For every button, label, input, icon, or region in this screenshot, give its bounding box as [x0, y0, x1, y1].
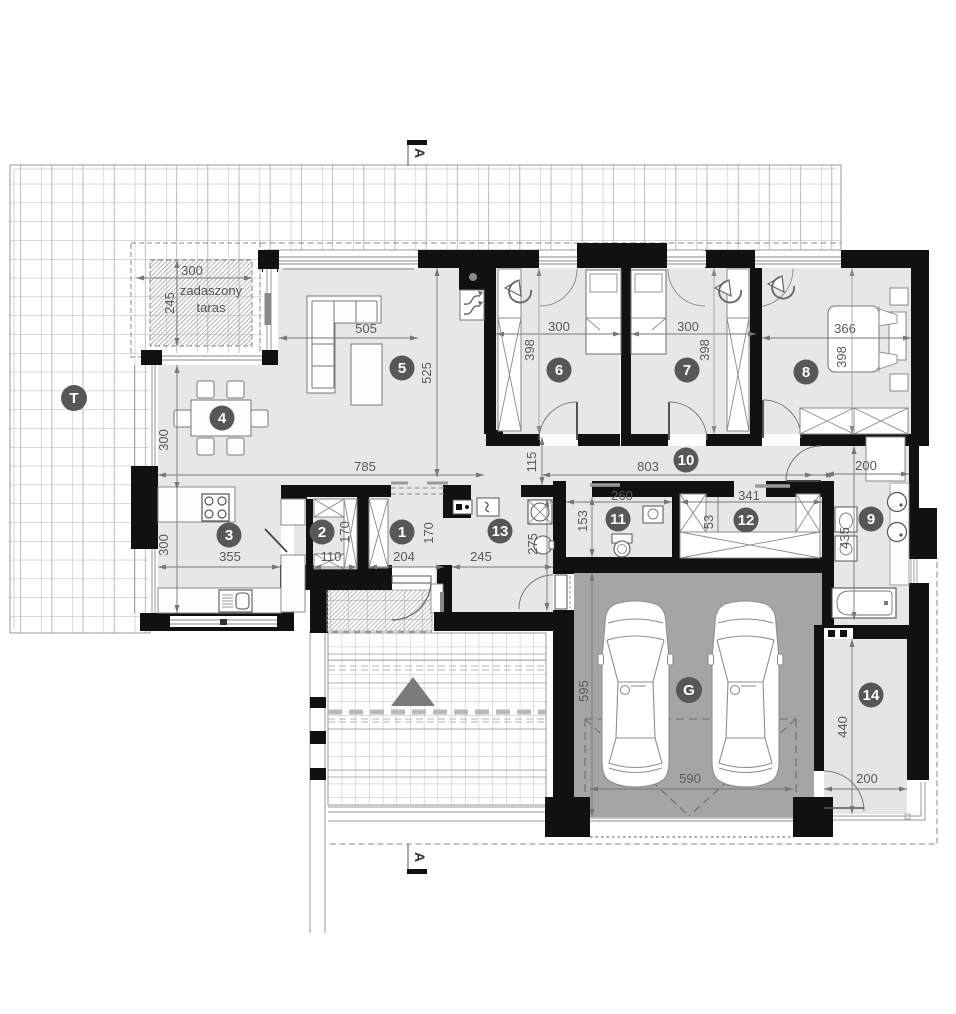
svg-text:A: A: [412, 852, 428, 862]
svg-text:110: 110: [321, 549, 342, 564]
svg-text:2: 2: [318, 524, 326, 541]
svg-text:200: 200: [855, 458, 877, 473]
svg-text:355: 355: [219, 549, 241, 564]
svg-text:785: 785: [354, 459, 376, 474]
svg-text:11: 11: [610, 511, 626, 528]
svg-text:1: 1: [398, 524, 406, 541]
svg-text:300: 300: [156, 429, 171, 451]
svg-text:170: 170: [337, 521, 352, 543]
svg-text:398: 398: [522, 339, 537, 361]
svg-text:9: 9: [867, 511, 875, 528]
svg-text:T: T: [69, 390, 78, 407]
svg-text:4: 4: [218, 410, 227, 427]
svg-text:8: 8: [802, 364, 810, 381]
svg-text:G: G: [683, 682, 695, 699]
svg-text:525: 525: [419, 362, 434, 384]
svg-text:590: 590: [679, 771, 701, 786]
svg-text:398: 398: [697, 339, 712, 361]
svg-text:14: 14: [863, 687, 880, 704]
svg-text:115: 115: [524, 452, 539, 473]
svg-text:204: 204: [393, 549, 415, 564]
svg-text:300: 300: [548, 319, 570, 334]
svg-text:260: 260: [611, 488, 633, 503]
svg-text:200: 200: [856, 771, 878, 786]
svg-text:275: 275: [525, 533, 540, 555]
svg-text:taras: taras: [197, 300, 226, 315]
svg-text:803: 803: [637, 459, 659, 474]
svg-text:7: 7: [683, 362, 691, 379]
svg-text:10: 10: [678, 452, 695, 469]
svg-text:5: 5: [398, 360, 406, 377]
svg-text:A: A: [412, 148, 428, 158]
svg-text:435: 435: [837, 527, 852, 549]
svg-text:300: 300: [181, 263, 203, 278]
svg-text:12: 12: [738, 512, 755, 529]
svg-text:153: 153: [575, 510, 590, 532]
svg-text:zadaszony: zadaszony: [180, 283, 243, 298]
svg-text:300: 300: [156, 534, 171, 556]
svg-text:595: 595: [576, 680, 591, 702]
svg-text:300: 300: [677, 319, 699, 334]
svg-text:341: 341: [738, 488, 760, 503]
svg-text:170: 170: [421, 522, 436, 544]
svg-text:505: 505: [355, 321, 377, 336]
svg-text:245: 245: [470, 549, 492, 564]
svg-text:440: 440: [835, 716, 850, 738]
svg-text:398: 398: [834, 346, 849, 368]
svg-text:366: 366: [834, 321, 856, 336]
svg-text:53: 53: [701, 515, 716, 529]
svg-text:3: 3: [225, 527, 233, 544]
svg-text:245: 245: [162, 292, 177, 314]
svg-text:6: 6: [555, 362, 563, 379]
svg-text:13: 13: [492, 523, 509, 540]
